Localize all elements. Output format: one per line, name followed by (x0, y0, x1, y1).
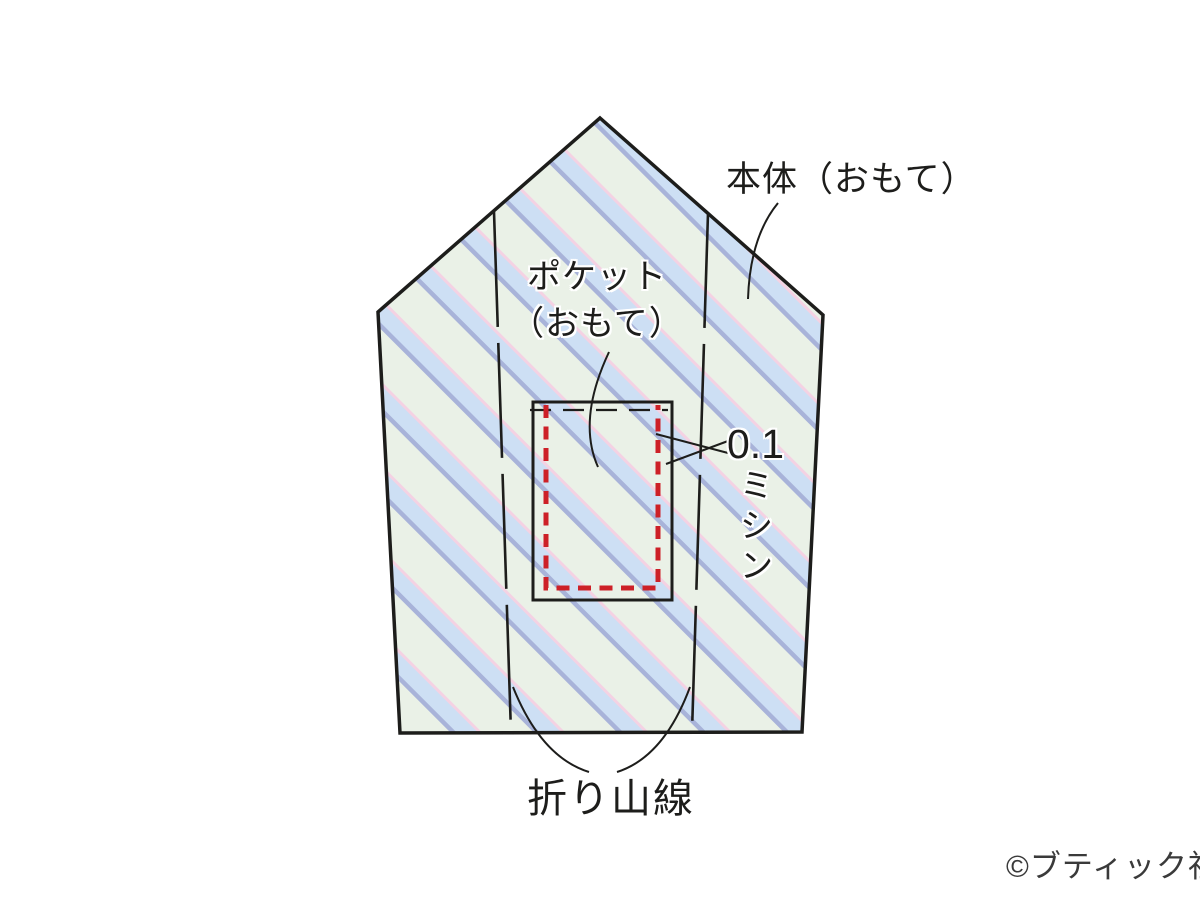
stitch-allowance-unit-vertical: ミシン (738, 466, 776, 586)
copyright-notice: ©ブティック社 (1006, 841, 1200, 886)
pocket-label-line2: （おもて） (503, 301, 691, 348)
sewing-diagram: 本体（おもて） ポケット （おもて） 0.1 ミシン 折り山線 ©ブティック社 (0, 0, 1200, 900)
main-body-label: 本体（おもて） (726, 151, 977, 202)
pocket-label: ポケット （おもて） (503, 254, 691, 348)
diagram-canvas (0, 0, 1200, 900)
pocket-label-line1: ポケット (503, 254, 691, 301)
stitch-allowance-value: 0.1 (727, 421, 784, 468)
fold-line-label: 折り山線 (527, 766, 695, 824)
